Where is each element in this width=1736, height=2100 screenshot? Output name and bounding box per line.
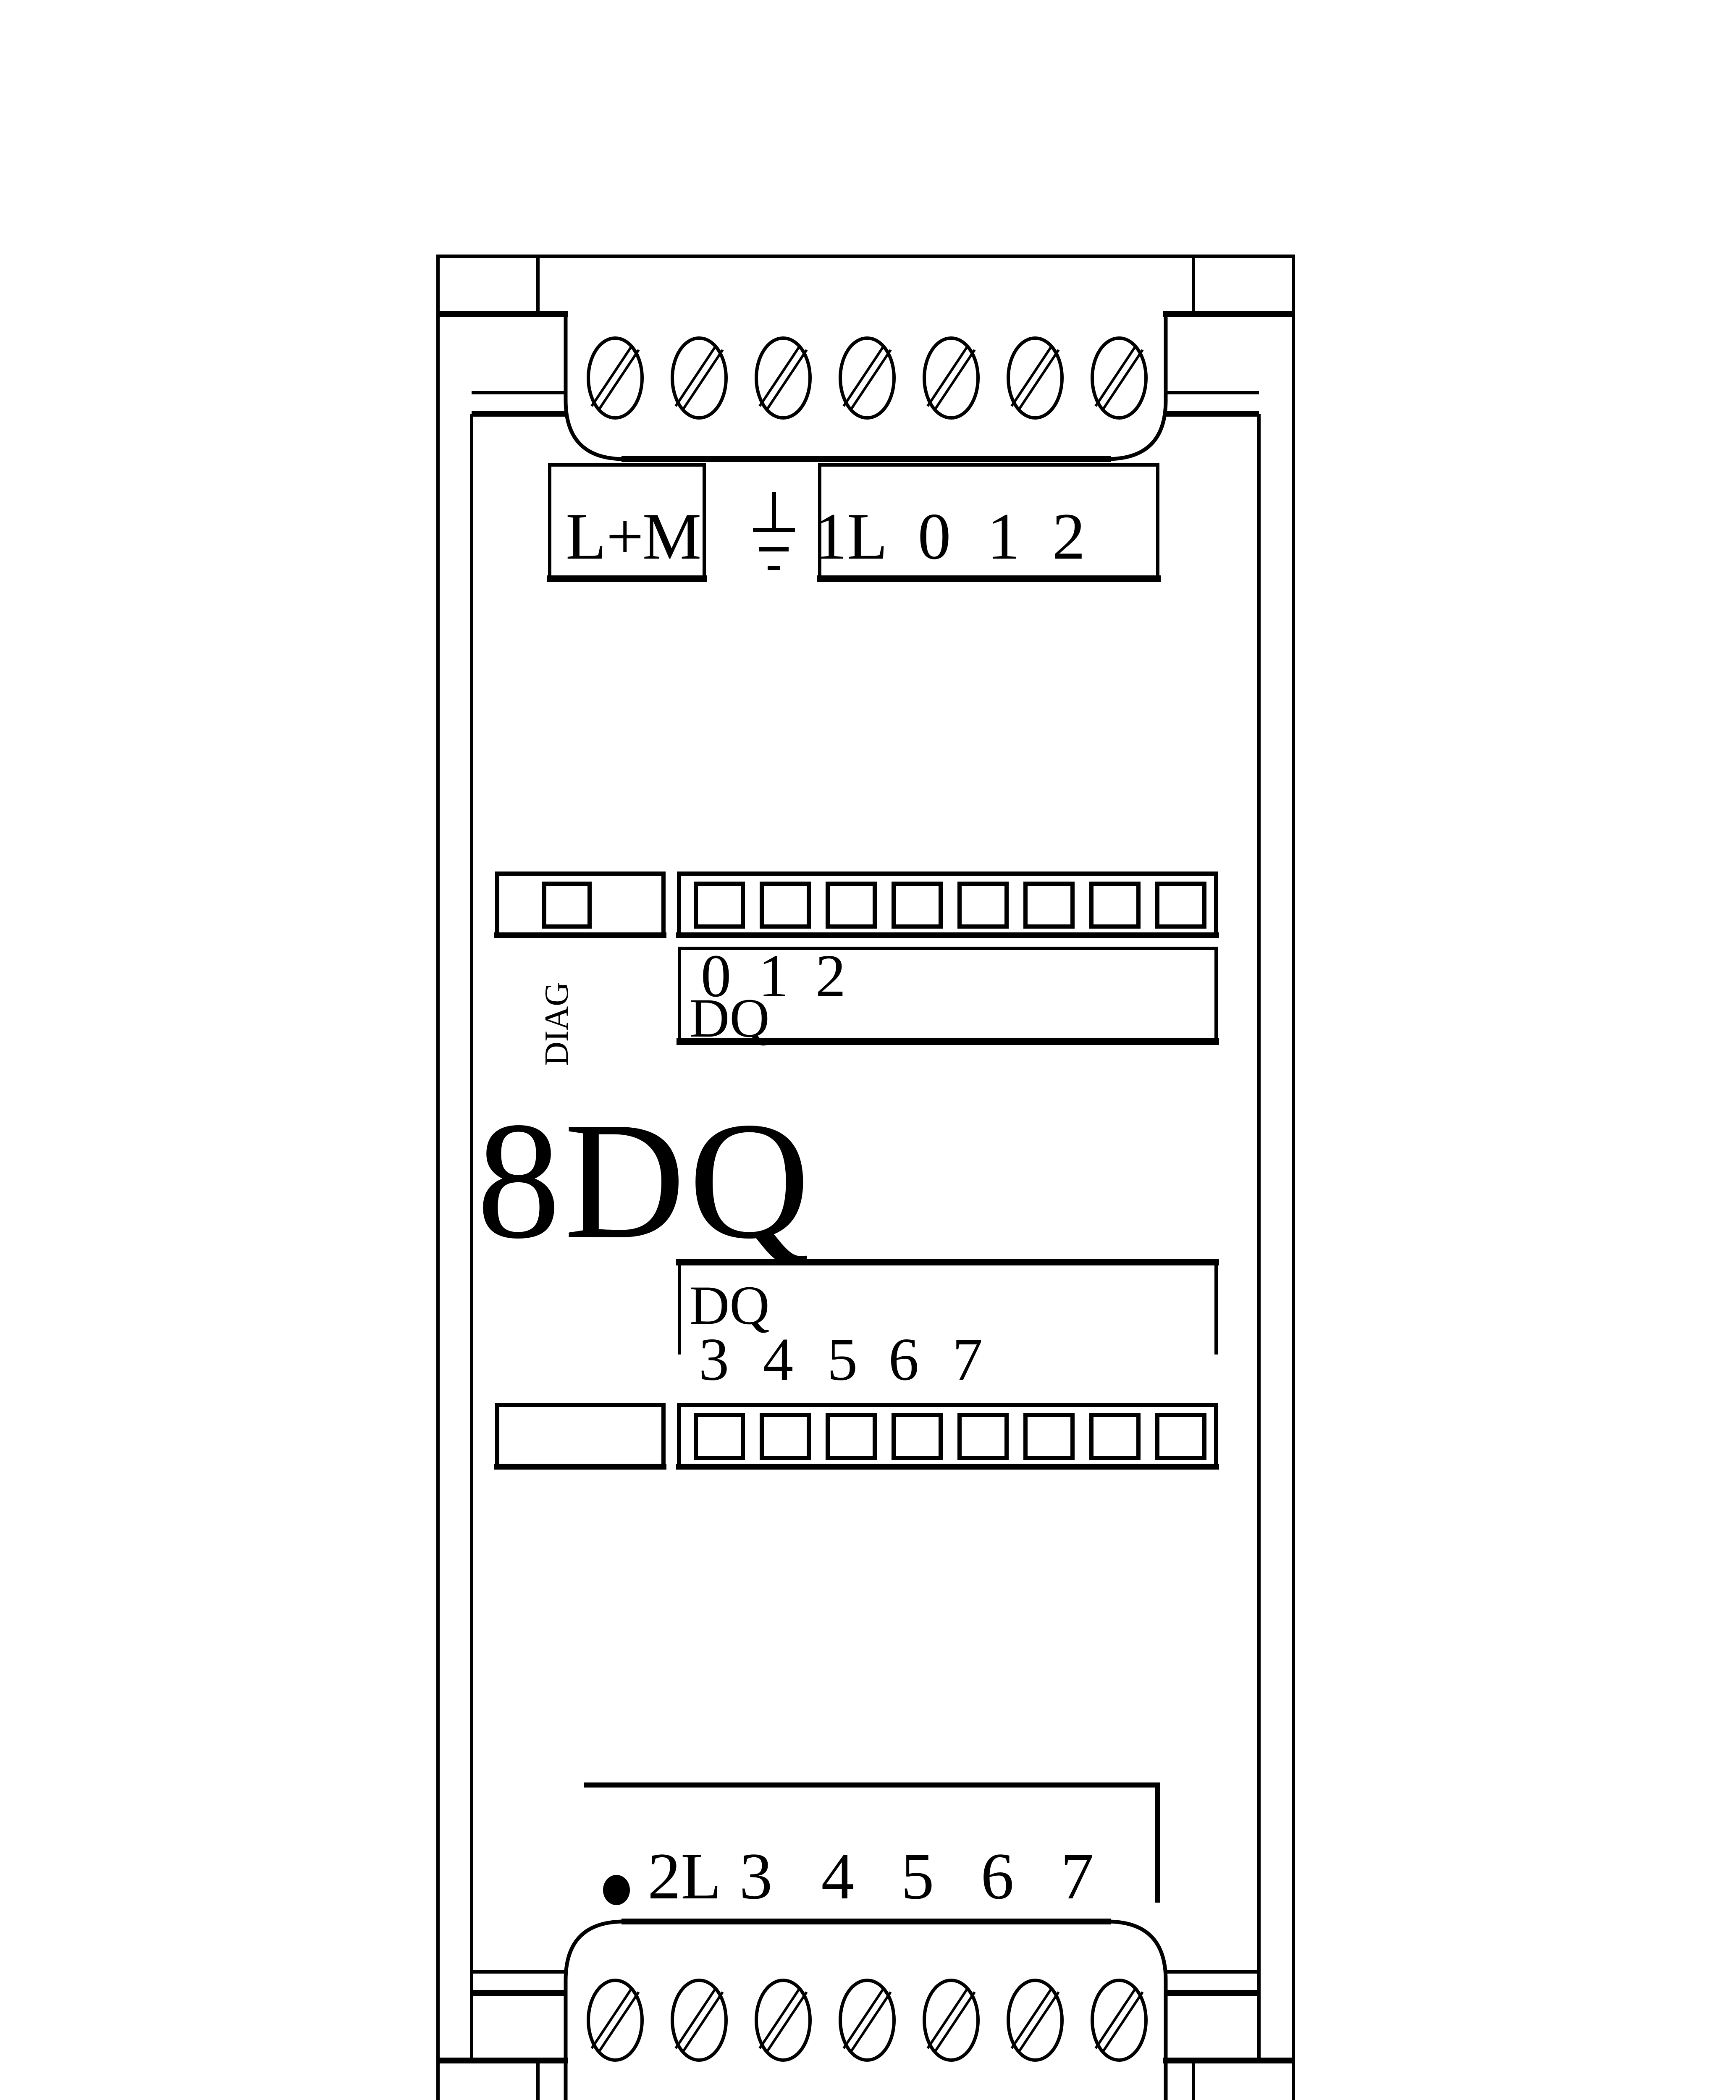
terminal-label-1l: 1L: [814, 500, 888, 573]
screw-terminal: [672, 338, 726, 418]
led-window: [1091, 1415, 1138, 1458]
screw-terminal: [1008, 338, 1062, 418]
screw-terminal: [1092, 1980, 1146, 2060]
led-window: [696, 1415, 743, 1458]
bottom-terminal-labels: 2L 3 4 5 6 7: [584, 1785, 1160, 1913]
screw-terminal: [588, 338, 642, 418]
screw-terminal: [756, 1980, 810, 2060]
channel-label-2: 2: [816, 942, 846, 1010]
screw-terminal: [924, 338, 978, 418]
led-window: [696, 884, 743, 927]
led-window: [1157, 884, 1204, 927]
top-terminal-labels: L+ M 1L 0 1 2: [547, 465, 1161, 579]
screw-terminal: [1092, 338, 1146, 418]
top-terminal-connector: [566, 312, 1166, 459]
bottom-terminal-connector: [566, 1921, 1166, 2100]
led-window: [1025, 884, 1073, 927]
led-window: [762, 884, 809, 927]
led-window: [894, 1415, 941, 1458]
terminal-label-1: 1: [987, 500, 1020, 573]
screw-terminal: [1008, 1980, 1062, 2060]
terminal-label-m: M: [642, 500, 702, 573]
terminal-label-lplus: L+: [566, 500, 644, 573]
terminal-label-2: 2: [1052, 500, 1086, 573]
screw-terminal: [588, 1980, 642, 2060]
diag-indicator: DIAG: [494, 874, 666, 1066]
channel-label-4: 4: [763, 1326, 794, 1393]
screw-terminal: [756, 338, 810, 418]
led-window: [960, 884, 1007, 927]
common-terminal-dot: [603, 1875, 630, 1905]
led-window: [828, 1415, 875, 1458]
led-bank-top: 0 1 2 DQ: [676, 874, 1219, 1049]
terminal-label-0: 0: [918, 500, 951, 573]
module-diagram: L+ M 1L 0 1 2 DIAG 0 1 2 DQ: [0, 0, 1736, 2100]
terminal-label-4: 4: [821, 1840, 855, 1913]
channel-label-7: 7: [952, 1326, 983, 1393]
led-window: [960, 1415, 1007, 1458]
screw-terminal: [924, 1980, 978, 2060]
terminal-label-7: 7: [1061, 1840, 1094, 1913]
screw-terminal: [672, 1980, 726, 2060]
led-bank-bottom: DQ 3 4 5 6 7: [494, 1262, 1219, 1467]
led-window: [1025, 1415, 1073, 1458]
dq-label-top: DQ: [690, 987, 770, 1049]
module-title: 8DQ: [477, 1087, 813, 1273]
diag-led-window: [544, 884, 590, 927]
led-window: [762, 1415, 809, 1458]
earth-ground-icon: [753, 492, 795, 568]
channel-label-5: 5: [827, 1326, 858, 1393]
terminal-label-2l: 2L: [648, 1840, 721, 1913]
led-window: [828, 884, 875, 927]
screw-terminal: [840, 338, 894, 418]
plc-module-wiring-diagram-page: L+ M 1L 0 1 2 DIAG 0 1 2 DQ: [0, 0, 1736, 2100]
channel-label-3: 3: [699, 1326, 729, 1393]
terminal-label-3: 3: [740, 1840, 773, 1913]
screw-terminal: [840, 1980, 894, 2060]
led-window: [1091, 884, 1138, 927]
led-window: [894, 884, 941, 927]
channel-label-6: 6: [889, 1326, 919, 1393]
terminal-label-5: 5: [901, 1840, 934, 1913]
terminal-label-6: 6: [981, 1840, 1014, 1913]
diag-label: DIAG: [538, 982, 575, 1066]
spare-indicator-box: [497, 1405, 663, 1467]
led-window: [1157, 1415, 1204, 1458]
bottom-connector-shroud: [566, 1921, 1166, 2100]
